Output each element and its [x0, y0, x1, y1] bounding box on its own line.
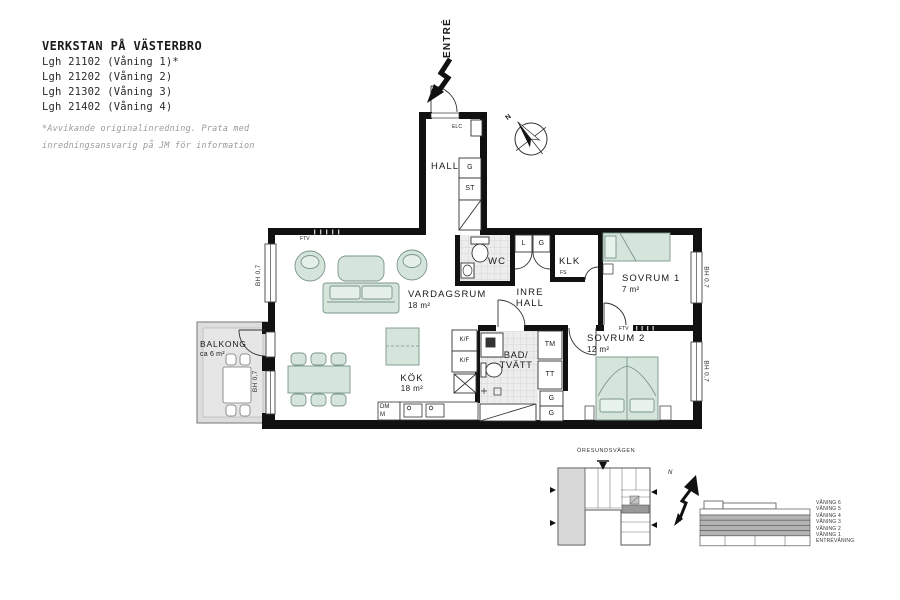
apartment-line: Lgh 21202 (Våning 2) — [42, 72, 172, 83]
apartment-line: Lgh 21402 (Våning 4) — [42, 102, 172, 113]
room-label-balkong: BALKONG — [200, 340, 247, 349]
bed-sovrum1 — [603, 233, 670, 274]
room-label-sovrum2: SOVRUM 2 — [587, 334, 645, 344]
wardrobe-label: G — [459, 164, 481, 171]
room-label-hall: HALL — [431, 162, 459, 172]
bed-sovrum2 — [585, 357, 671, 420]
highlighted-unit — [622, 505, 649, 513]
room-label-sovrum1: SOVRUM 1 — [622, 274, 680, 284]
dining-furniture — [288, 353, 350, 406]
footnote-line: *Avvikande originalinredning. Prata med — [42, 125, 249, 134]
north-arrow-icon — [674, 475, 699, 526]
ftv-label: FTV — [618, 327, 630, 332]
fs-label: FS — [560, 271, 567, 276]
room-label-wc: WC — [488, 257, 506, 267]
room-label-kok: KÖK — [392, 374, 432, 384]
room-area-sovrum1: 7 m² — [622, 286, 640, 294]
window-height-label: BH 0,7 — [702, 252, 709, 302]
doors — [239, 86, 626, 356]
ftv-label: FTV — [300, 237, 310, 242]
window-height-label: BH 0,7 — [256, 250, 263, 300]
project-title: VERKSTAN PÅ VÄSTERBRO — [42, 40, 202, 52]
kitchen-counter — [378, 402, 478, 420]
floorplan-page: VERKSTAN PÅ VÄSTERBRO Lgh 21102 (Våning … — [0, 0, 900, 600]
room-label-bad: TVÄTT — [496, 361, 536, 371]
entry-label: ENTRÉ — [443, 8, 453, 68]
window-height-label: BH 0,7 — [253, 356, 260, 406]
kitchen-island — [386, 328, 419, 365]
dishwasher-label: DM — [380, 404, 390, 410]
site-plan — [550, 461, 657, 545]
street-label: ÖRESUNDSVÄGEN — [577, 449, 635, 455]
apartment-line: Lgh 21102 (Våning 1)* — [42, 57, 179, 68]
window-height-label: BH 0,7 — [702, 346, 709, 396]
room-area-balkong: ca 6 m² — [200, 351, 225, 358]
storage-label: ST — [459, 185, 481, 192]
building-elevation — [700, 501, 810, 546]
room-label-vardagsrum: VARDAGSRUM — [408, 290, 486, 300]
washer-label: TM — [538, 341, 562, 348]
fridge-freezer-label: K/F — [452, 337, 477, 343]
fridge-freezer-label: K/F — [452, 358, 477, 364]
floor-label: ENTRÉVÅNING — [816, 538, 854, 544]
room-area-vardagsrum: 18 m² — [408, 302, 430, 310]
wardrobe-label: G — [540, 395, 563, 402]
locator-north-label: N — [668, 470, 672, 476]
wardrobe-label: G — [540, 410, 563, 417]
elc-label: ELC — [452, 125, 462, 130]
wardrobe-label: G — [533, 240, 550, 247]
linen-closet-label: L — [515, 240, 532, 247]
dryer-label: TT — [538, 371, 562, 378]
room-area-sovrum2: 12 m² — [587, 346, 609, 354]
footnote-line: inredningsansvarig på JM för information — [42, 142, 255, 151]
room-area-kok: 18 m² — [392, 385, 432, 393]
apartment-line: Lgh 21302 (Våning 3) — [42, 87, 172, 98]
room-label-inre-hall: INRE — [500, 288, 560, 298]
micro-label: M — [380, 412, 385, 418]
room-label-klk: KLK — [559, 257, 580, 267]
room-label-inre-hall: HALL — [500, 299, 560, 309]
